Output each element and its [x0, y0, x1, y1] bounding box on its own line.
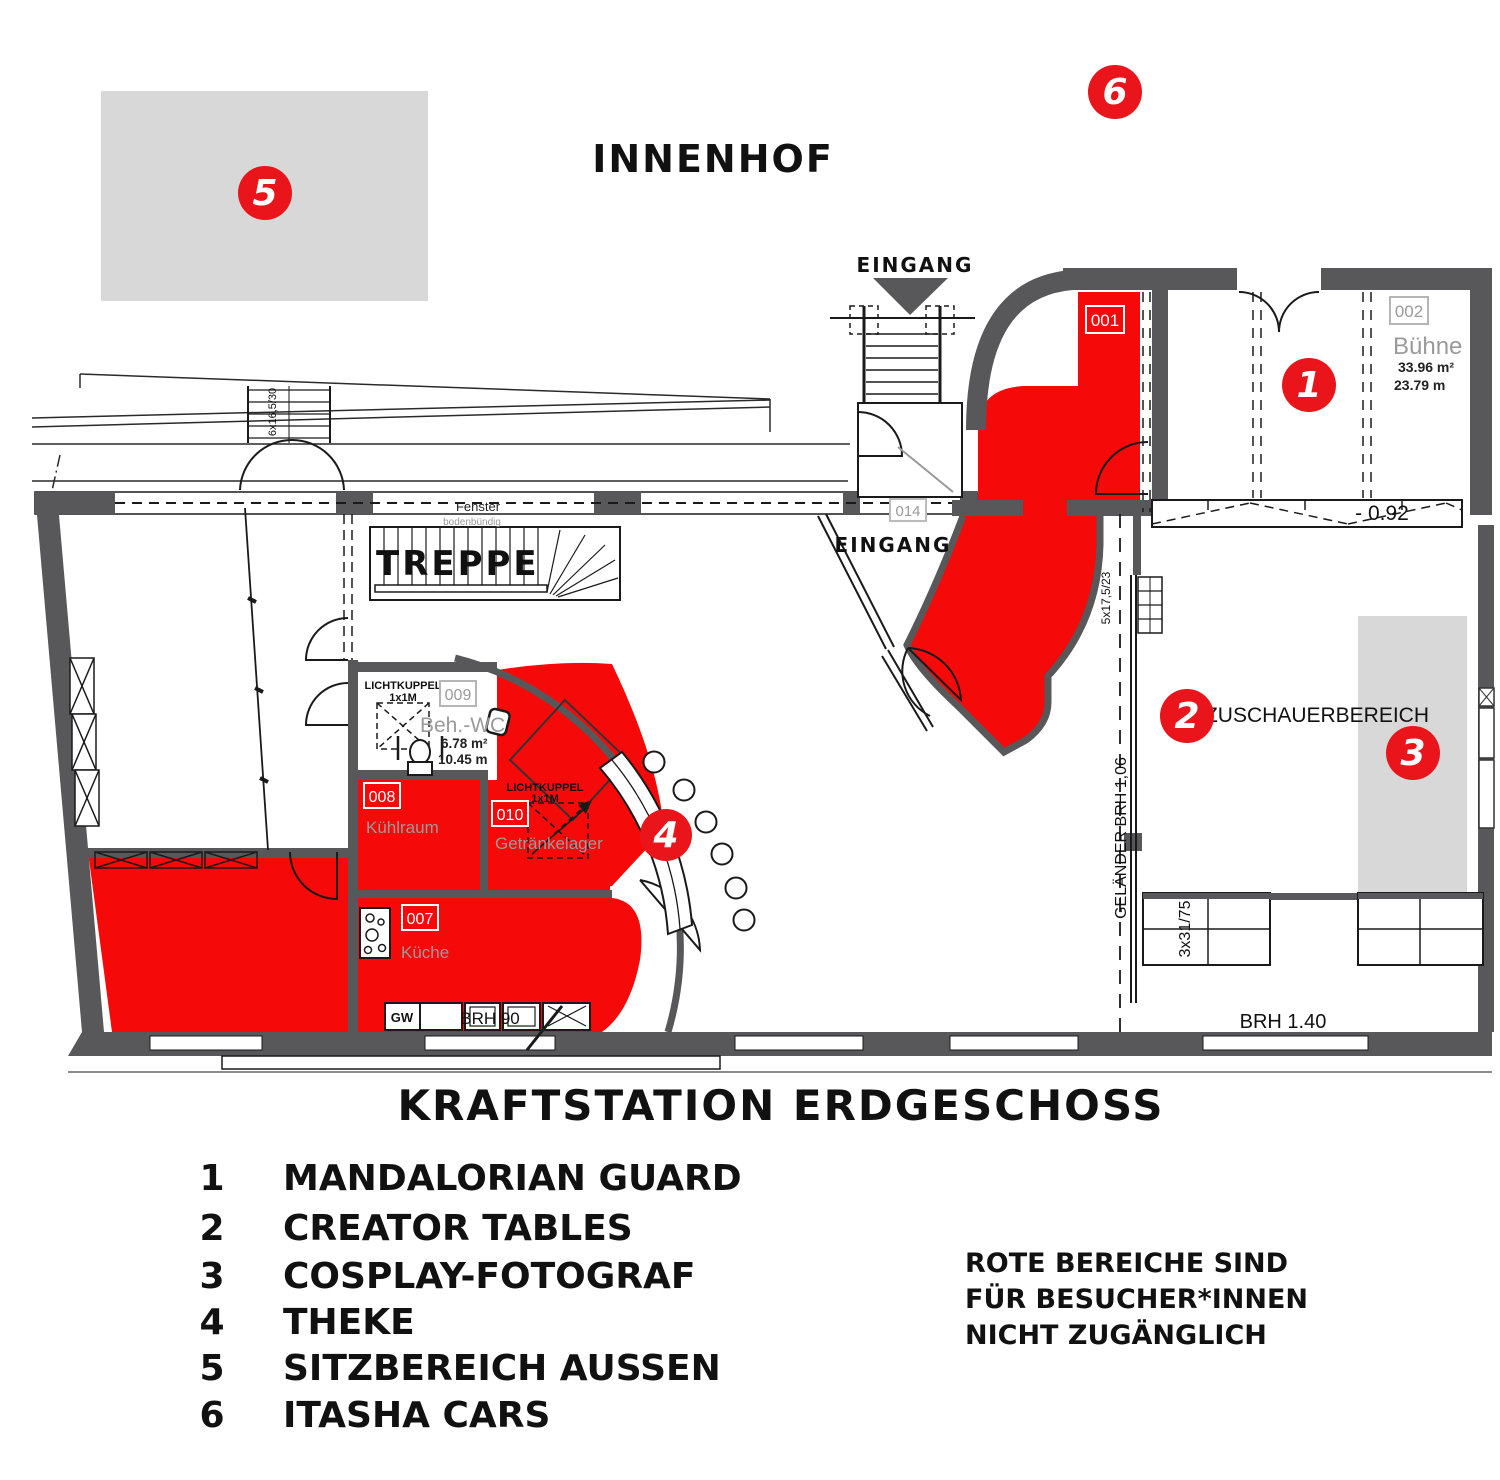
west-double-door — [240, 386, 344, 490]
legend-4-label: THEKE — [283, 1302, 415, 1343]
bar-stool — [726, 878, 747, 899]
room009-area: 6.78 m² — [441, 736, 488, 751]
legend-3-num: 3 — [199, 1256, 224, 1297]
fenster-note: bodenbündig — [443, 517, 501, 528]
stair-top-dim: 6x16,5/30 — [267, 388, 279, 436]
legend-5-num: 5 — [199, 1348, 224, 1389]
entrance-stair-top — [830, 306, 975, 403]
courtyard-title: INNENHOF — [592, 137, 834, 181]
marker-2: 2 — [1160, 689, 1214, 743]
room014-id: 014 — [895, 503, 920, 520]
bar-stool — [734, 910, 755, 931]
sill-right-label: BRH 1.40 — [1240, 1011, 1327, 1033]
fenster-label: Fenster — [456, 499, 501, 514]
legend-1-num: 1 — [199, 1158, 224, 1199]
bar-stool — [696, 812, 717, 833]
bar-stool — [674, 780, 695, 801]
stage-front-band — [1152, 500, 1462, 527]
legend-1-label: MANDALORIAN GUARD — [283, 1158, 742, 1199]
gw-label: GW — [391, 1010, 414, 1025]
marker-6: 6 — [1088, 65, 1142, 119]
store-skylight-line2: 1x1M — [531, 793, 559, 805]
room010-name: Getränkelager — [495, 834, 603, 853]
stair-right-dim: 5x17,5/23 — [1099, 571, 1113, 624]
red-area-southwest-room — [88, 852, 348, 1032]
room010-id: 010 — [497, 807, 524, 824]
stage-level-label: - 0.92 — [1355, 502, 1409, 525]
room001-id: 001 — [1091, 311, 1119, 330]
room008-name: Kühlraum — [366, 818, 439, 837]
wc-skylight-line2: 1x1M — [389, 692, 417, 704]
legend-3-label: COSPLAY-FOTOGRAF — [283, 1256, 696, 1297]
marker-3: 3 — [1386, 726, 1440, 780]
marker-5-num: 5 — [252, 173, 277, 214]
marker-5: 5 — [238, 166, 292, 220]
south-wall — [68, 1032, 1492, 1072]
room002-name: Bühne — [1393, 333, 1462, 360]
room008-id: 008 — [369, 789, 396, 806]
north-wall — [35, 492, 977, 514]
floorplan-page: INNENHOF EINGANG EINGANG Fenster bodenbü… — [0, 0, 1500, 1480]
legend-2-label: CREATOR TABLES — [283, 1208, 633, 1249]
bar-stool — [644, 752, 665, 773]
bar-stool — [712, 844, 733, 865]
red-wall-chunk — [1023, 500, 1067, 516]
room009-name: Beh.-WC — [420, 714, 505, 737]
legend-2-num: 2 — [199, 1208, 224, 1249]
marker-4-num: 4 — [652, 815, 678, 856]
treppe-label: TREPPE — [376, 544, 540, 584]
room002-id: 002 — [1395, 302, 1423, 321]
note-line-1: ROTE BEREICHE SIND — [965, 1248, 1288, 1279]
legend-5-label: SITZBEREICH AUSSEN — [283, 1348, 721, 1389]
railing-label: GELÄNDER BRH 1,06 — [1112, 757, 1130, 919]
room009-length: 10.45 m — [438, 752, 488, 767]
room009-id: 009 — [445, 687, 472, 704]
stage-dashed-lines — [1143, 292, 1371, 512]
room002-area: 33.96 m² — [1398, 359, 1454, 375]
marker-4: 4 — [640, 809, 692, 861]
marker-1-num: 1 — [1296, 365, 1321, 406]
entrance-vestibule-top — [858, 403, 962, 497]
legend-4-num: 4 — [199, 1302, 224, 1343]
note-line-2: FÜR BESUCHER*INNEN — [965, 1282, 1308, 1315]
marker-2-num: 2 — [1174, 696, 1199, 737]
plan-title: KRAFTSTATION ERDGESCHOSS — [398, 1081, 1165, 1130]
steps-dim: 3x31/75 — [1177, 900, 1194, 957]
red-area-corridor-001 — [907, 292, 1140, 752]
note-line-3: NICHT ZUGÄNGLICH — [965, 1319, 1267, 1351]
entrance-arrow-icon — [873, 278, 948, 315]
floorplan-canvas: INNENHOF EINGANG EINGANG Fenster bodenbü… — [0, 0, 1500, 1480]
entrance-top-label: EINGANG — [857, 253, 974, 277]
marker-1: 1 — [1282, 358, 1336, 412]
marker-3-num: 3 — [1400, 733, 1425, 774]
legend-6-label: ITASHA CARS — [283, 1395, 550, 1436]
audience-label: ZUSCHAUERBEREICH — [1205, 704, 1429, 727]
room007-name: Küche — [401, 943, 449, 962]
kitchen-sill-label: BRH 90 — [460, 1009, 520, 1028]
restricted-note: ROTE BEREICHE SIND FÜR BESUCHER*INNEN NI… — [965, 1248, 1308, 1351]
partition-and-braces — [70, 508, 352, 850]
entrance-inner-label: EINGANG — [835, 533, 952, 557]
audience-steps — [1143, 893, 1483, 965]
wc-skylight-line1: LICHTKUPPEL — [365, 680, 442, 692]
legend: 1 MANDALORIAN GUARD 2 CREATOR TABLES 3 C… — [199, 1158, 741, 1436]
room007-id: 007 — [407, 911, 434, 928]
room002-length: 23.79 m — [1394, 377, 1445, 393]
marker-6-num: 6 — [1102, 72, 1127, 113]
legend-6-num: 6 — [199, 1395, 224, 1436]
